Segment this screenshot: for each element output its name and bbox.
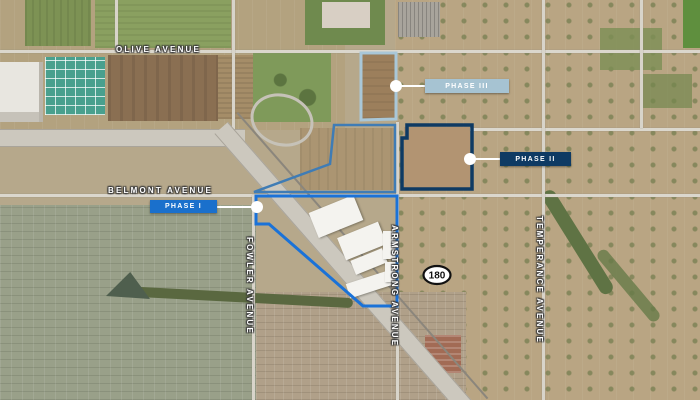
street-label-belmont-avenue: BELMONT AVENUE [108, 186, 213, 195]
vacant-parcel [300, 128, 394, 190]
street-label-armstrong-avenue: ARMSTRONG AVENUE [390, 225, 399, 347]
green-field [25, 0, 91, 46]
phase-3-label[interactable]: PHASE III [425, 79, 509, 93]
parking-lot [398, 2, 440, 37]
street-label-fowler-avenue: FOWLER AVENUE [245, 237, 254, 335]
industrial-complex [0, 62, 43, 122]
farm-buildings [322, 2, 370, 28]
phase2-parcel-land [404, 127, 470, 188]
east-cross-road [470, 128, 700, 131]
tree-patch [600, 28, 662, 70]
phase-1-label[interactable]: PHASE I [150, 200, 217, 213]
highway-180-west-segment [0, 129, 245, 147]
minor-road [640, 0, 643, 128]
tree-patch [642, 74, 692, 108]
minor-road [232, 0, 235, 130]
residential-southwest [0, 205, 256, 400]
phase-2-label[interactable]: PHASE II [500, 152, 571, 166]
phase3-parcel-land [362, 54, 395, 119]
green-field [683, 0, 700, 48]
brown-field [108, 55, 218, 121]
treatment-ponds [45, 57, 105, 115]
aerial-map[interactable]: 180 PHASE I PHASE II PHASE III OLIVE AVE… [0, 0, 700, 400]
orchard-rows [218, 55, 254, 119]
street-label-olive-avenue: OLIVE AVENUE [116, 45, 201, 54]
olive-avenue-road [0, 50, 700, 53]
street-label-temperance-avenue: TEMPERANCE AVENUE [535, 216, 544, 344]
